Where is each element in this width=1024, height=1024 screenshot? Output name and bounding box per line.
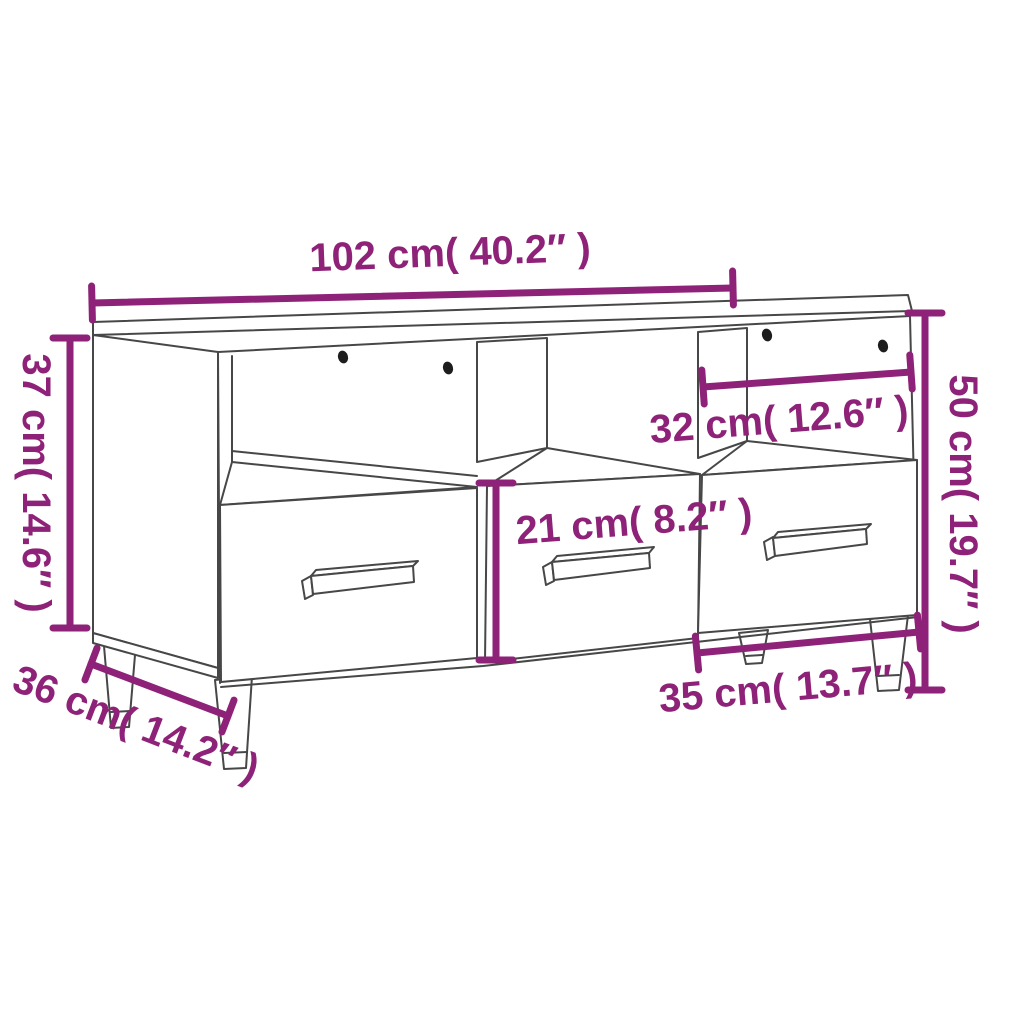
screw-icon	[760, 327, 773, 342]
left-side-panel	[93, 335, 218, 668]
screw-icon	[336, 349, 349, 364]
screw-icon	[441, 360, 454, 375]
leg-back-right-foot	[746, 655, 762, 656]
screw-icon	[876, 338, 889, 353]
dimension-label: 50 cm( 19.7″ )	[941, 374, 985, 633]
partition-1	[477, 338, 547, 462]
dimension-label: 37 cm( 14.6″ )	[14, 353, 58, 612]
dimension-compartment-width: 32 cm( 12.6″ )	[648, 355, 912, 452]
dimension-label: 32 cm( 12.6″ )	[648, 388, 910, 452]
dimension-upper-section-height: 37 cm( 14.6″ )	[14, 338, 87, 628]
dimension-label: 102 cm( 40.2″ )	[308, 226, 591, 281]
furniture-dimension-diagram: 102 cm( 40.2″ ) 37 cm( 14.6″ ) 50 cm( 19…	[0, 0, 1024, 1024]
